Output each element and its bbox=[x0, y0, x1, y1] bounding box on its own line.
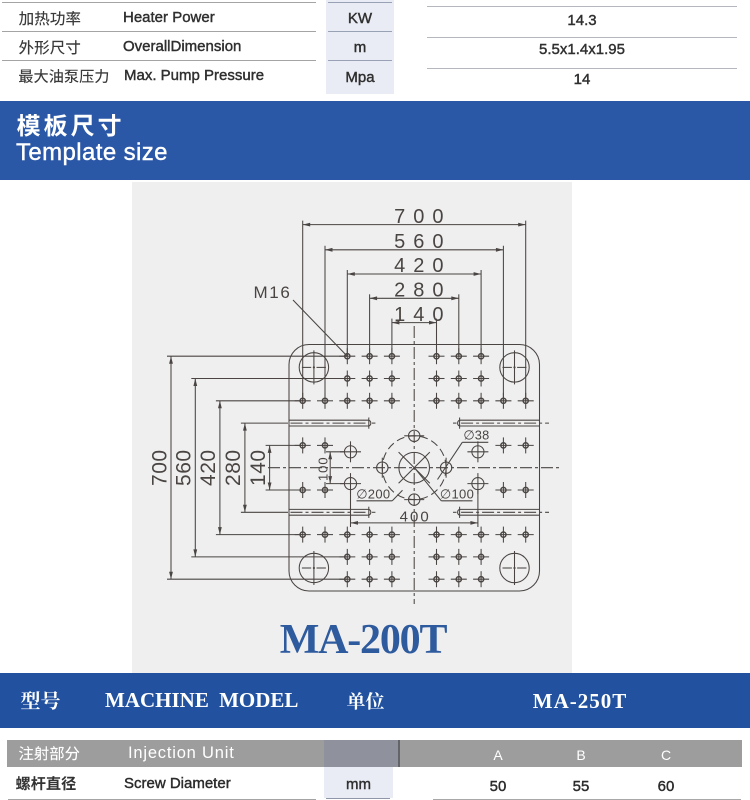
svg-text:420: 420 bbox=[197, 449, 220, 486]
svg-text:700: 700 bbox=[394, 206, 451, 228]
svg-text:420: 420 bbox=[394, 255, 451, 277]
svg-text:∅100: ∅100 bbox=[440, 486, 474, 501]
svg-text:140: 140 bbox=[247, 449, 270, 486]
svg-text:400: 400 bbox=[400, 508, 431, 525]
svg-text:100: 100 bbox=[315, 456, 330, 481]
svg-text:∅200: ∅200 bbox=[356, 486, 390, 501]
svg-text:700: 700 bbox=[148, 449, 171, 486]
svg-text:280: 280 bbox=[394, 280, 451, 302]
svg-text:M16: M16 bbox=[254, 283, 292, 302]
svg-text:560: 560 bbox=[173, 449, 196, 486]
svg-text:560: 560 bbox=[394, 231, 451, 253]
svg-text:∅38: ∅38 bbox=[463, 428, 489, 443]
svg-text:280: 280 bbox=[222, 449, 245, 486]
svg-text:140: 140 bbox=[394, 304, 451, 326]
